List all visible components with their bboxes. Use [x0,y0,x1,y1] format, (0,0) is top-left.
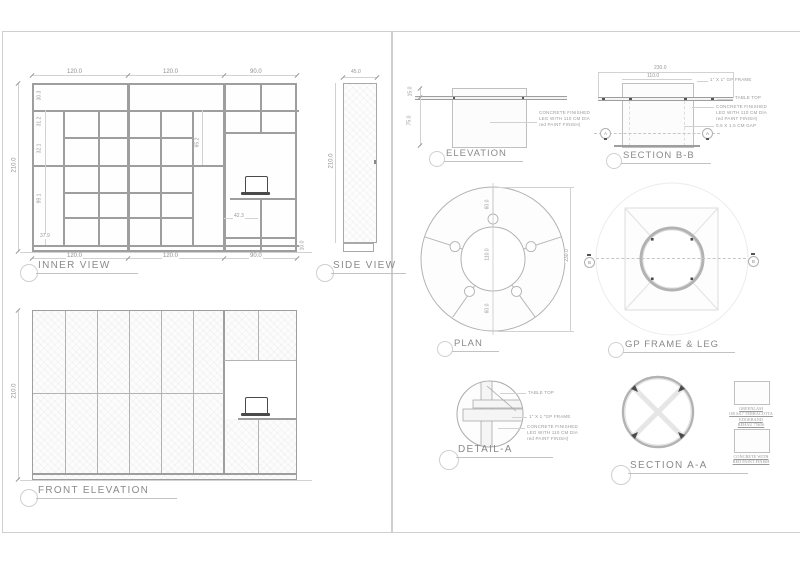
front-elevation-label: FRONT ELEVATION [36,485,177,499]
plan-dim-outer: 230.0 [565,248,570,263]
material-swatch-laminate [734,381,770,405]
door-handle [374,160,376,164]
front-elevation-drawing [32,310,297,480]
gp-frame-label: GP FRAME & LEG [623,339,735,353]
side-dim-height: 210.0 [329,152,335,169]
dim-row-2: 31.2 [37,116,42,128]
plan-section-b-marker: B [584,257,595,268]
bb-note-frame: 1" X 1" GP FRAME [710,77,752,83]
bb-note-top: TABLE TOP [735,95,761,101]
dim-row-5: 37.9 [39,234,51,239]
gp-section-b-marker: B [748,256,759,267]
gp-frame-drawing [595,182,765,342]
front-ground-line [20,480,312,481]
section-aa-drawing [618,372,702,456]
detail-note-leg: CONCRETE FINISHED LEG WITH 110 CM DIA re… [527,424,578,442]
detail-a-label: DETAIL-A [456,444,553,458]
section-bb-label: SECTION B-B [621,150,711,164]
inner-view-drawing [32,83,297,252]
gp-frame-bullet [608,342,624,358]
detail-note-top: TABLE TOP [528,390,554,396]
laptop-base-icon-front [241,413,270,416]
plan-label: PLAN [452,338,499,352]
inner-view-label: INNER VIEW [36,260,138,274]
dim-niche: 42.3 [233,214,245,219]
dim-mid-shelf: 65.2 [195,137,200,149]
dim-left-height: 210.0 [12,156,18,173]
plan-drawing [405,175,605,365]
table-top-elevation [415,96,567,100]
material-note-laminate: GREENLAM OR SA7 TERRACOTTA EDGEBAND REHA… [720,406,782,427]
dim-top-1: 120.0 [66,69,83,75]
plan-dim-seg-top: 60.0 [485,199,490,211]
side-view-drawing [343,83,377,243]
dim-bottom-2: 120.0 [162,253,179,259]
elevation-label: ELEVATION [444,148,523,162]
dim-row-4: 99.1 [37,193,42,205]
side-view-label: SIDE VIEW [331,260,406,274]
drawing-sheet: 120.0 120.0 90.0 120.0 120.0 90.0 10.0 2… [0,0,800,565]
plan-dim-seg-bottom: 60.0 [485,303,490,315]
material-swatch-concrete [734,429,770,453]
laptop-base-icon [241,192,270,195]
front-dim-height: 210.0 [12,382,18,399]
elev-dim-height: 75.0 [407,115,412,127]
dim-plinth: 10.0 [300,240,305,252]
section-bb-bullet [606,153,622,169]
dim-top-2: 120.0 [162,69,179,75]
elevation-bullet [429,151,445,167]
detail-note-frame: 1" X 1 "GP FRAME [529,414,571,420]
material-note-concrete: CONCRETE WITH RED PAINT FINISH [720,454,782,465]
bb-dim-overall: 230.0 [653,66,668,71]
plan-dim-inner: 110.0 [486,247,491,261]
section-ground-line [614,145,700,147]
dim-row-3: 32.1 [37,143,42,155]
plan-bullet [437,341,453,357]
elev-dim-top: 15.0 [408,86,413,98]
bb-note-leg: CONCRETE FINISHED LEG WITH 110 CM DIA re… [716,104,767,122]
bb-dim-inner: 110.0 [646,74,660,79]
dim-bottom-3: 90.0 [249,253,263,259]
side-view-base [343,243,374,252]
dim-top-3: 90.0 [249,69,263,75]
dim-bottom-1: 120.0 [66,253,83,259]
side-dim-width: 45.0 [350,70,362,75]
bb-note-gap: 0.5 X 1.5 CM GAP [716,123,756,129]
elev-note: CONCRETE FINISHED LEG WITH 110 CM DIA re… [539,110,590,128]
dim-row-1: 30.3 [37,90,42,102]
